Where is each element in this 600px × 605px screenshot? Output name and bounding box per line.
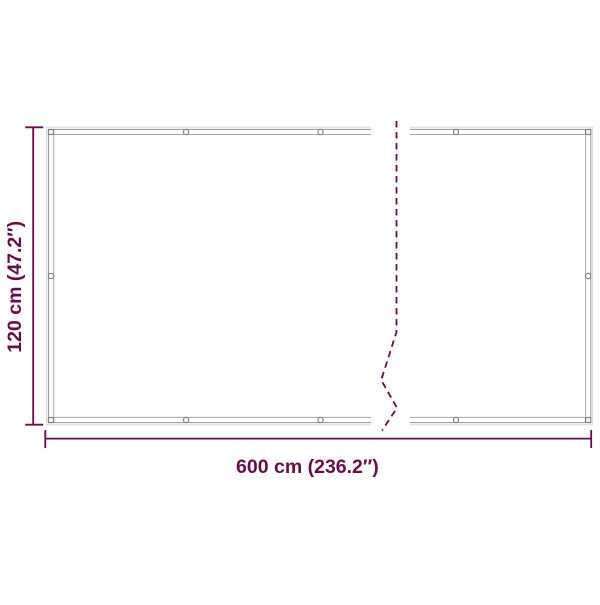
svg-text:120 cm (47.2″): 120 cm (47.2″): [4, 221, 26, 353]
svg-text:600 cm (236.2″): 600 cm (236.2″): [236, 456, 379, 478]
